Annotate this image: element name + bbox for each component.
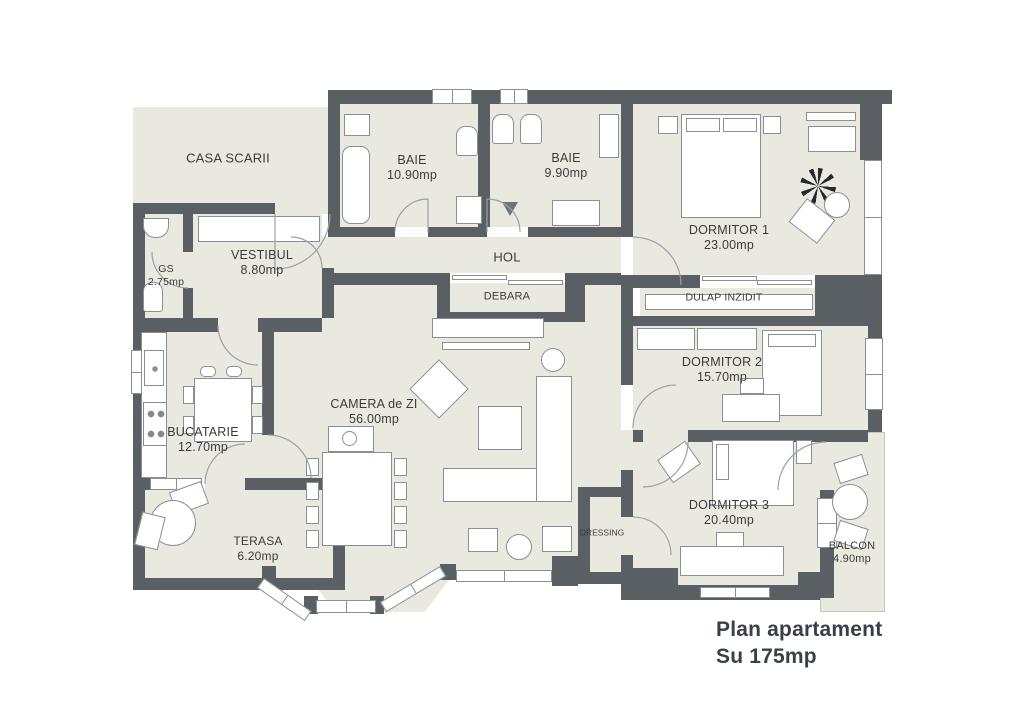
chair: [306, 530, 319, 548]
floor-plan: CASA SCARII BAIE10.90mp BAIE9.90mp DORMI…: [0, 0, 1018, 720]
room-name: BUCATARIE: [167, 425, 238, 440]
floor-hall-opening: [621, 430, 633, 470]
room-name: DORMITOR 2: [682, 355, 762, 370]
wall: [428, 227, 487, 237]
wall: [133, 203, 275, 214]
room-area: 56.00mp: [330, 412, 417, 427]
room-area: 12.70mp: [167, 440, 238, 455]
armchair: [468, 528, 498, 552]
room-area: 23.00mp: [689, 238, 769, 253]
room-label-camera-de-zi: CAMERA de ZI56.00mp: [330, 397, 417, 427]
wardrobe: [697, 328, 757, 350]
floor-terasa-door-gap: [205, 478, 245, 490]
chair: [394, 530, 407, 548]
chair: [200, 366, 216, 377]
wall: [183, 288, 193, 318]
coffee-table: [478, 406, 522, 450]
wall: [633, 275, 700, 288]
wall: [552, 556, 578, 586]
nightstand: [658, 116, 678, 134]
room-name: CAMERA de ZI: [330, 397, 417, 412]
chair: [306, 458, 319, 476]
room-label-debara: DEBARA: [484, 290, 530, 305]
wall: [133, 578, 345, 590]
room-name: GS: [148, 263, 184, 276]
cabinet: [599, 114, 619, 158]
wall: [621, 227, 633, 237]
room-area: 8.80mp: [231, 263, 293, 278]
wall: [633, 316, 868, 326]
window: [865, 338, 883, 410]
room-name: BAIE: [387, 153, 437, 168]
room-label-casa-scarii: CASA SCARII: [186, 151, 270, 166]
closet: [198, 216, 320, 242]
window: [864, 160, 882, 275]
wall: [528, 227, 633, 237]
wall: [330, 90, 892, 104]
wall: [565, 273, 585, 322]
room-area: 10.90mp: [387, 168, 437, 183]
sofa: [443, 468, 537, 502]
chair: [394, 458, 407, 476]
sliding-door: [452, 275, 507, 280]
wall: [334, 273, 437, 285]
wall: [262, 332, 274, 435]
room-name: DORMITOR 3: [689, 498, 769, 513]
window: [500, 89, 528, 104]
floor-gs-door-gap: [183, 252, 193, 288]
chair: [226, 366, 242, 377]
room-name: DORMITOR 1: [689, 223, 769, 238]
wall: [578, 572, 621, 584]
desk: [808, 126, 856, 152]
dining-table: [322, 452, 392, 546]
pillow: [723, 118, 757, 132]
tv-cabinet: [432, 318, 544, 338]
nightstand: [796, 440, 812, 464]
wall: [820, 432, 834, 440]
wall: [133, 318, 218, 332]
room-label-dressing: DRESSING: [580, 526, 624, 541]
floor-kitchen-camera-gap: [262, 435, 274, 478]
shower-icon: [502, 202, 518, 216]
desk: [722, 394, 780, 422]
room-label-baie-2: BAIE9.90mp: [545, 151, 588, 181]
floor-kitchen-door-gap: [218, 318, 258, 332]
room-name: TERASA: [233, 534, 282, 549]
window-bay-bottom: [316, 600, 376, 613]
floor-balcon-door-gap: [820, 440, 834, 490]
toilet: [492, 114, 514, 144]
wall: [322, 268, 334, 318]
room-name: DULAP INZIDIT: [685, 291, 762, 306]
chair: [394, 482, 407, 500]
chair: [306, 482, 319, 500]
room-label-dormitor-2: DORMITOR 215.70mp: [682, 355, 762, 385]
room-label-dormitor-3: DORMITOR 320.40mp: [689, 498, 769, 528]
room-area: 20.40mp: [689, 513, 769, 528]
wall: [621, 104, 633, 227]
pillow: [768, 334, 816, 347]
room-label-hol: HOL: [493, 250, 520, 265]
wall: [621, 555, 633, 568]
plan-title-line2: Su 175mp: [716, 643, 882, 670]
wall: [633, 430, 643, 442]
kitchen-sink: [144, 350, 164, 386]
room-label-bucatarie: BUCATARIE12.70mp: [167, 425, 238, 455]
room-name: HOL: [493, 250, 520, 265]
room-area: 4.90mp: [829, 553, 875, 566]
wall: [621, 275, 633, 385]
sofa: [536, 376, 572, 502]
wall: [815, 275, 868, 288]
washbasin: [344, 114, 370, 136]
toilet: [456, 126, 478, 156]
armchair: [542, 526, 572, 552]
bidet: [520, 114, 542, 144]
chair: [394, 506, 407, 524]
floor-dormitor-3-door: [643, 430, 688, 442]
room-area: 9.90mp: [545, 166, 588, 181]
room-label-vestibul: VESTIBUL8.80mp: [231, 248, 293, 278]
plan-title: Plan apartament Su 175mp: [716, 616, 882, 670]
room-name: BALCON: [829, 540, 875, 553]
chair: [306, 506, 319, 524]
wall: [437, 273, 450, 322]
wall: [183, 214, 193, 252]
desk: [680, 546, 784, 576]
wall: [621, 568, 678, 600]
sliding-door: [702, 276, 757, 281]
side-table: [824, 192, 850, 218]
room-name: BAIE: [545, 151, 588, 166]
room-label-gs: GS2.75mp: [148, 263, 184, 289]
room-name: VESTIBUL: [231, 248, 293, 263]
room-label-baie-1: BAIE10.90mp: [387, 153, 437, 183]
wall: [578, 487, 633, 497]
stove: [143, 402, 167, 446]
bathtub: [342, 146, 370, 224]
pillow: [716, 444, 729, 480]
room-label-dulap-inzidit: DULAP INZIDIT: [685, 291, 762, 306]
washing-machine: [456, 196, 482, 224]
pillow: [686, 118, 720, 132]
window: [456, 570, 552, 582]
round-table: [832, 484, 868, 520]
wall: [328, 90, 340, 237]
wall: [258, 318, 322, 332]
chair: [252, 416, 263, 434]
room-name: DEBARA: [484, 290, 530, 305]
tv: [442, 342, 530, 350]
wall: [868, 275, 882, 338]
shelf: [806, 112, 856, 121]
floor-camera-patch-1: [322, 285, 437, 322]
window: [432, 89, 472, 104]
room-label-dormitor-1: DORMITOR 123.00mp: [689, 223, 769, 253]
decor-bowl: [342, 431, 357, 446]
wall: [133, 478, 150, 490]
wall: [815, 288, 868, 316]
nightstand: [763, 116, 781, 134]
floor-hol: [322, 237, 621, 273]
floor-lamp: [541, 348, 565, 372]
chair: [183, 386, 194, 404]
vanity: [552, 200, 600, 226]
sliding-door: [757, 280, 812, 285]
wall: [868, 410, 882, 432]
floor-entrance-gap: [275, 203, 330, 214]
room-name: CASA SCARII: [186, 151, 270, 166]
room-area: 15.70mp: [682, 370, 762, 385]
wardrobe: [637, 328, 695, 350]
room-area: 6.20mp: [233, 549, 282, 564]
room-label-terasa: TERASA6.20mp: [233, 534, 282, 564]
wall: [860, 90, 882, 160]
plan-title-line1: Plan apartament: [716, 616, 882, 643]
chair: [252, 386, 263, 404]
room-label-balcon: BALCON4.90mp: [829, 540, 875, 566]
room-name: DRESSING: [580, 526, 624, 541]
floor-camera-patch-2: [585, 285, 621, 318]
room-area: 2.75mp: [148, 276, 184, 289]
round-table: [506, 534, 532, 560]
wall: [330, 227, 395, 237]
sliding-door: [508, 280, 563, 285]
wall: [585, 273, 621, 285]
window: [700, 587, 770, 598]
